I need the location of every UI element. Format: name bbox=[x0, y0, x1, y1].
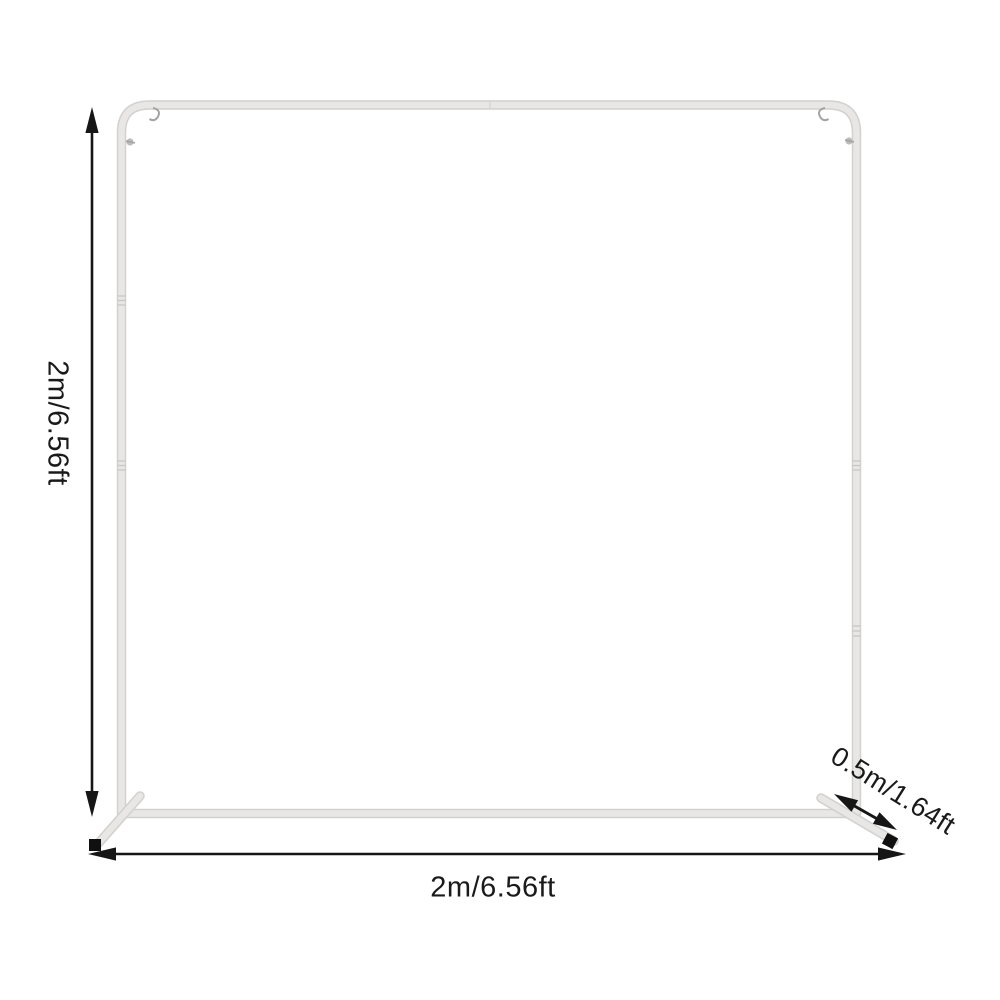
backdrop-stand-graphic bbox=[0, 0, 1000, 1000]
frame-tube-edge bbox=[122, 105, 857, 814]
left-foot-cap bbox=[89, 839, 101, 851]
height-dimension-arrow bbox=[85, 107, 98, 817]
frame-tube bbox=[122, 105, 857, 814]
width-dimension-arrow bbox=[88, 847, 906, 860]
arrowhead-down-icon bbox=[85, 791, 98, 817]
arrowhead-right-icon bbox=[878, 847, 906, 860]
arrowhead-up-icon bbox=[85, 107, 98, 133]
product-dimension-diagram: 2m/6.56ft 2m/6.56ft 0.5m/1.64ft bbox=[0, 0, 1000, 1000]
height-dimension-label: 2m/6.56ft bbox=[41, 360, 74, 485]
width-dimension-label: 2m/6.56ft bbox=[430, 872, 555, 905]
